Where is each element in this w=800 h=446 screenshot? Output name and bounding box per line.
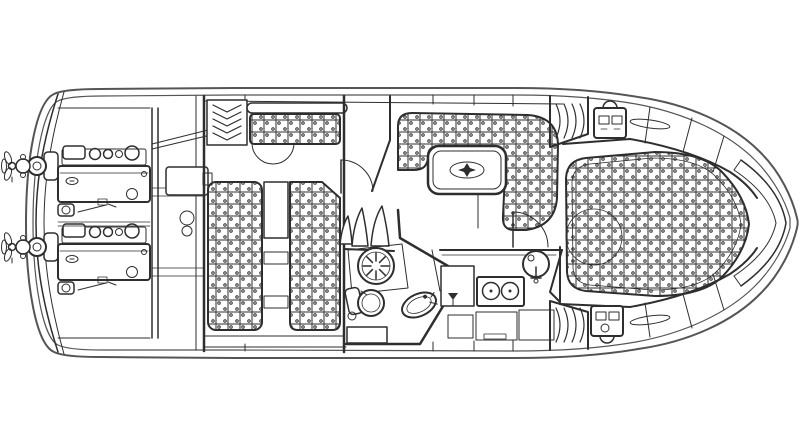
locker-divider (683, 294, 692, 328)
fuel-filter (182, 226, 192, 236)
cabinet-handle (484, 334, 506, 339)
electrical-panel-top electrical-panel-icon (594, 101, 626, 138)
companionway-steps (340, 206, 394, 251)
transom-curve-outer (36, 94, 58, 352)
boat-floor-plan: Twin-engine motor yacht interior deck pl… (0, 0, 800, 446)
bow-shelf-tie (734, 276, 741, 286)
island-berth (566, 152, 749, 296)
fold-table-arc (252, 143, 294, 164)
base-cabinet (519, 310, 554, 340)
shower shower-drain-icon (358, 248, 394, 284)
step (340, 216, 352, 244)
hanging-locker-curves (556, 104, 584, 138)
wash-basin basin-icon (398, 287, 441, 323)
generator-box (166, 167, 208, 195)
toilet toilet-icon (344, 287, 384, 320)
companionway-wall-diagonal (372, 140, 390, 191)
step (352, 208, 368, 246)
base-cabinet (476, 312, 517, 340)
stern-gear (2, 151, 59, 263)
electrical-panel-bottom electrical-panel-icon (591, 306, 623, 343)
sofa-backrest (247, 103, 347, 113)
aft-sofa-cushion (250, 114, 340, 144)
grab-rail-top grab-rail-icon (630, 117, 671, 130)
floor-plan-svg: Twin-engine motor yacht interior deck pl… (0, 0, 800, 446)
bow-shelf-tie (734, 160, 741, 170)
step (371, 206, 389, 246)
head-locker (347, 327, 387, 343)
water-heater (180, 211, 194, 225)
locker-divider (645, 303, 650, 337)
hanging-locker hanging-locker-icon (207, 100, 247, 145)
starboard-engine (58, 224, 150, 294)
galley-sink sink-faucet-icon (523, 251, 549, 283)
head-partition (432, 250, 440, 291)
stove stove-burners-icon (477, 277, 524, 306)
port-engine (58, 146, 150, 216)
aft-berth-port (208, 182, 262, 330)
grab-rail-bottom grab-rail-icon (630, 313, 671, 326)
aft-cabin (204, 96, 347, 351)
starboard-outdrive propeller-icon (2, 232, 59, 263)
berth-infill (264, 296, 288, 308)
hanging-locker-curves (556, 308, 584, 342)
locker-divider (645, 107, 650, 143)
locker-divider (683, 118, 692, 152)
berth-infill (264, 182, 288, 238)
icebox (441, 266, 474, 306)
galley (440, 250, 562, 340)
berth-infill (264, 252, 288, 264)
aft-berth-starboard (290, 182, 340, 330)
base-cabinet (448, 315, 473, 338)
cabin-door-swing-arc (341, 160, 373, 191)
bow-cabin (550, 96, 786, 350)
